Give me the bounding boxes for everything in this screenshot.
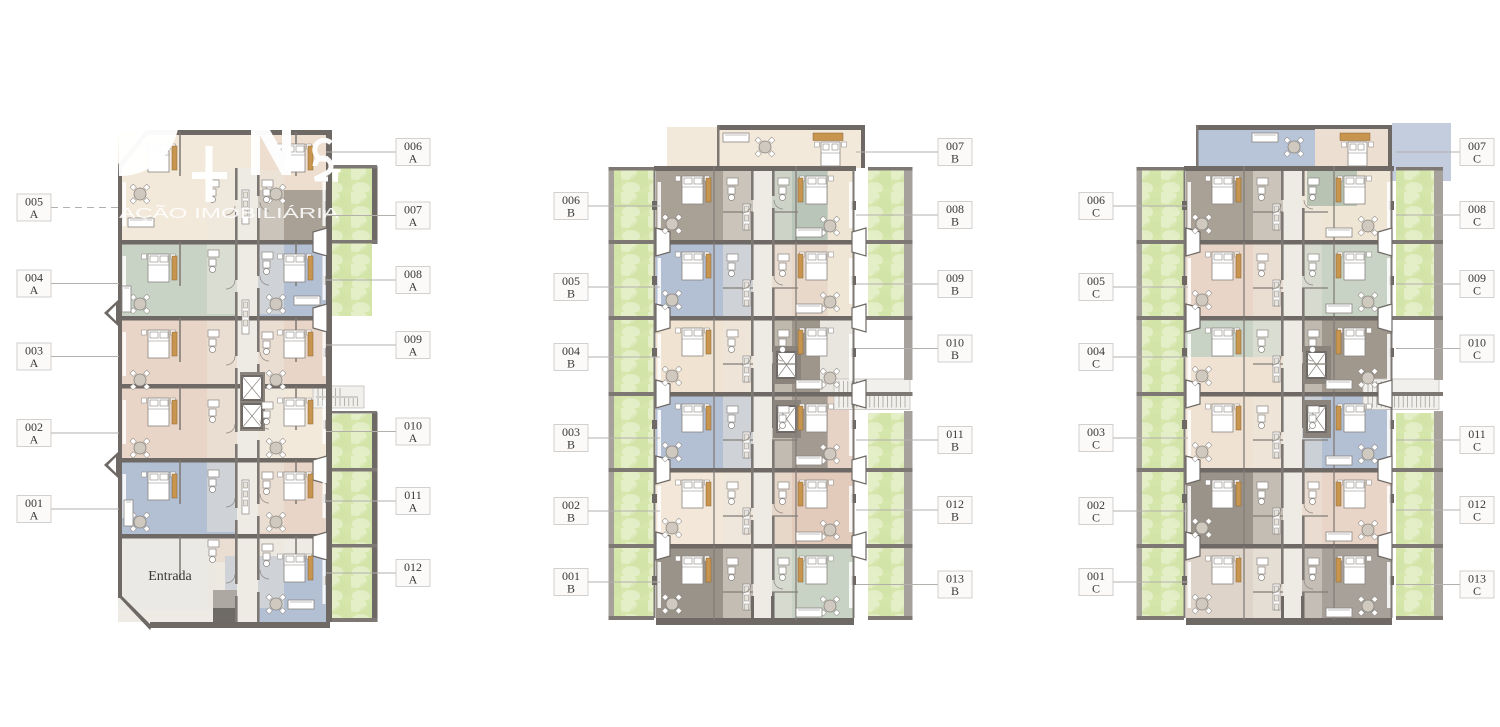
svg-text:A: A (30, 356, 39, 370)
svg-text:C: C (1092, 582, 1100, 596)
svg-text:B: B (951, 284, 959, 298)
svg-text:B: B (567, 357, 575, 371)
svg-text:A: A (30, 283, 39, 297)
svg-text:C: C (1473, 284, 1481, 298)
svg-text:Entrada: Entrada (148, 569, 192, 584)
svg-text:C: C (1473, 215, 1481, 229)
svg-text:A: A (30, 207, 39, 221)
svg-text:C: C (1473, 348, 1481, 362)
svg-text:C: C (1092, 438, 1100, 452)
svg-text:A: A (409, 345, 418, 359)
svg-text:A: A (30, 433, 39, 447)
svg-text:C: C (1473, 510, 1481, 524)
svg-text:C: C (1092, 511, 1100, 525)
svg-text:A: A (30, 509, 39, 523)
svg-text:B: B (567, 511, 575, 525)
svg-text:B: B (951, 348, 959, 362)
svg-text:AÇÃO IMOBILIÁRIA: AÇÃO IMOBILIÁRIA (119, 205, 339, 222)
svg-text:A: A (409, 501, 418, 515)
svg-text:C: C (1092, 287, 1100, 301)
svg-text:B: B (951, 215, 959, 229)
svg-text:C: C (1092, 206, 1100, 220)
svg-text:C: C (1473, 584, 1481, 598)
svg-text:A: A (409, 152, 418, 166)
svg-text:A: A (409, 280, 418, 294)
svg-text:B: B (951, 510, 959, 524)
svg-text:B: B (951, 584, 959, 598)
svg-text:B: B (951, 152, 959, 166)
svg-text:B: B (951, 440, 959, 454)
svg-text:A: A (409, 573, 418, 587)
svg-text:B: B (567, 582, 575, 596)
svg-text:C: C (1473, 440, 1481, 454)
svg-text:B: B (567, 206, 575, 220)
svg-text:A: A (409, 215, 418, 229)
svg-text:A: A (409, 431, 418, 445)
svg-text:C: C (1092, 357, 1100, 371)
svg-text:B: B (567, 287, 575, 301)
svg-text:B: B (567, 438, 575, 452)
svg-text:C: C (1473, 152, 1481, 166)
